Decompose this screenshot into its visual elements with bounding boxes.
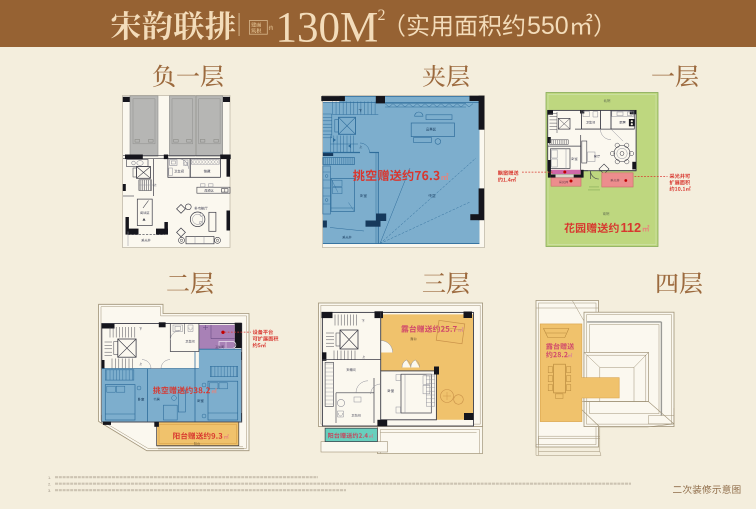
svg-text:3.: 3. — [48, 488, 51, 493]
svg-text:1.: 1. — [48, 475, 51, 480]
svg-text:130M: 130M — [276, 5, 379, 52]
svg-text:112: 112 — [621, 220, 642, 235]
svg-text:550: 550 — [527, 12, 569, 40]
svg-text:2.: 2. — [48, 482, 51, 487]
svg-text:2: 2 — [378, 7, 386, 24]
